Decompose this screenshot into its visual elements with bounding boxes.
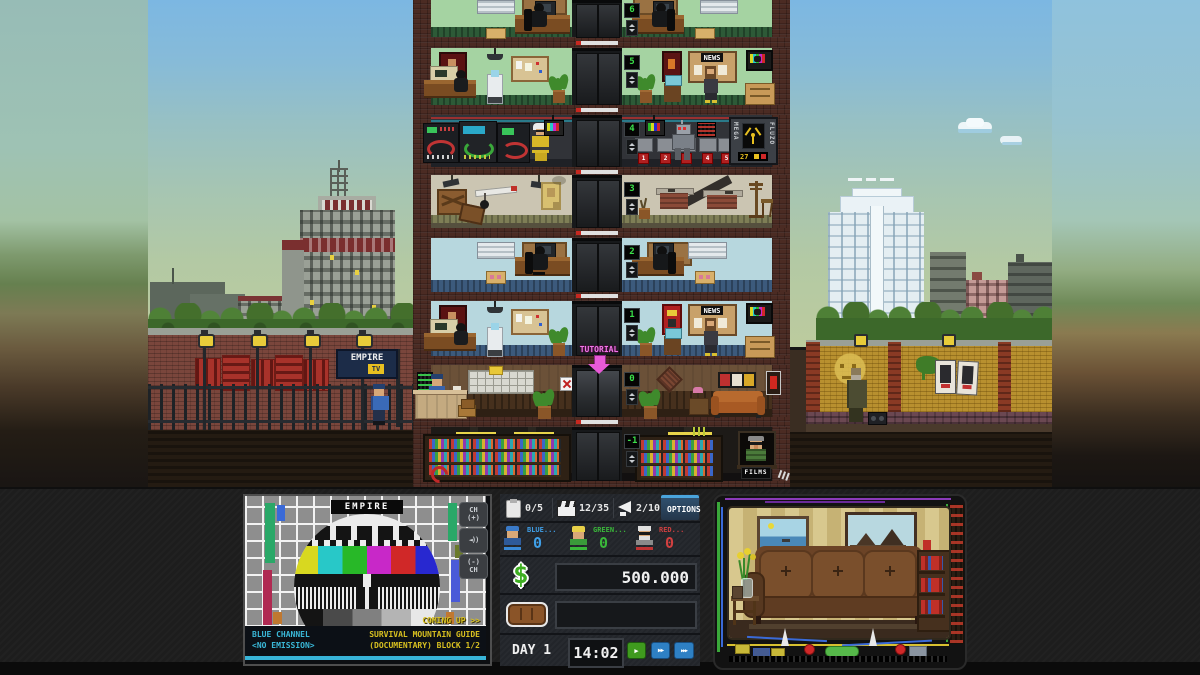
old-poster bbox=[541, 182, 561, 210]
film-shelf bbox=[635, 435, 723, 482]
living-room-panel bbox=[713, 494, 967, 670]
table-photo bbox=[732, 586, 743, 599]
money-value: 500.000 bbox=[622, 568, 689, 587]
news-label: NEWS bbox=[701, 307, 723, 315]
fastest-forward-button[interactable]: ▶▶▶ bbox=[674, 642, 694, 659]
presenter-blue[interactable]: BLUE... 0 bbox=[500, 523, 566, 555]
office-worker bbox=[452, 323, 470, 351]
parcel-boxes bbox=[458, 399, 476, 415]
control-rack bbox=[497, 123, 530, 163]
wall-tv bbox=[746, 303, 773, 324]
tv-electronics-strip bbox=[727, 636, 949, 662]
elevator-floor-6[interactable]: EMPIRE bbox=[572, 0, 622, 37]
play-button[interactable]: ▶ bbox=[627, 642, 646, 659]
films-sign: FILMS bbox=[741, 467, 771, 479]
aquarium-stand bbox=[664, 336, 681, 355]
knob-red bbox=[895, 644, 906, 655]
building: NEWS bbox=[413, 0, 790, 490]
empire-tv-sign: EMPIRE TV bbox=[336, 349, 398, 379]
living-room-view bbox=[727, 506, 951, 640]
elevator-call-buttons[interactable] bbox=[626, 262, 638, 278]
tv-preview-panel: EMPIRE CH(+) ◄)) (-)CH COMING UP >> BLUE… bbox=[243, 494, 492, 666]
clipboard-icon bbox=[506, 500, 521, 518]
avatar bbox=[570, 526, 587, 550]
elevator-floor-5[interactable]: EMPIRE bbox=[572, 48, 622, 105]
city-left: EMPIRE TV bbox=[148, 0, 418, 490]
office-worker bbox=[647, 246, 675, 276]
next-program-line2: (DOCUMENTARY) BLOCK 1/2 bbox=[330, 641, 480, 650]
elevator-call-buttons[interactable] bbox=[626, 389, 638, 405]
side-table bbox=[731, 596, 759, 636]
underground-left bbox=[148, 430, 415, 490]
wall-tv bbox=[746, 50, 773, 71]
control-rack bbox=[423, 123, 459, 163]
office-worker bbox=[524, 3, 552, 33]
drawer-unit bbox=[745, 83, 775, 105]
fast-forward-button[interactable]: ▶▶ bbox=[651, 642, 670, 659]
wrecked-desk bbox=[703, 190, 741, 210]
wall-poster bbox=[956, 360, 979, 395]
news-label: NEWS bbox=[701, 54, 723, 62]
photo-frame bbox=[486, 271, 506, 284]
wrecked-desk bbox=[656, 188, 692, 210]
lobby-couch bbox=[711, 391, 765, 417]
drawer-unit bbox=[745, 336, 775, 358]
broken-chair bbox=[761, 199, 773, 221]
tv-badge: TV bbox=[368, 365, 384, 373]
office-worker bbox=[525, 246, 553, 276]
empire-tv-sign-text: EMPIRE bbox=[338, 353, 396, 363]
floor-indicator: 4 bbox=[624, 122, 640, 137]
avatar bbox=[504, 526, 521, 550]
speaker-icon: ◄)) bbox=[460, 536, 487, 544]
tutorial-arrow-icon bbox=[588, 364, 610, 374]
now-playing-line1: BLUE CHANNEL bbox=[252, 630, 310, 639]
broadcast-progress-bar bbox=[245, 656, 486, 660]
envelope bbox=[489, 366, 503, 375]
floor-indicator: 3 bbox=[624, 182, 640, 197]
elevator-floor-3[interactable]: EMPIRE bbox=[572, 175, 622, 228]
avatar bbox=[636, 526, 653, 550]
coming-up-label: COMING UP >> bbox=[350, 616, 480, 625]
station-label: EMPIRE bbox=[331, 500, 403, 514]
plant bbox=[637, 391, 663, 417]
ads-counter[interactable]: 2/10 bbox=[614, 494, 660, 521]
city-right bbox=[790, 0, 1052, 490]
tv-stand: 4 bbox=[700, 138, 714, 167]
elevator-call-buttons[interactable] bbox=[626, 20, 638, 36]
photo-frame bbox=[486, 28, 506, 39]
archivist-character bbox=[744, 436, 768, 462]
circuit-strip bbox=[949, 504, 964, 644]
wall-lamp bbox=[942, 334, 956, 347]
blur-band-right bbox=[1052, 0, 1200, 490]
money-field: 500.000 bbox=[555, 563, 697, 591]
flux-counter: 27 bbox=[740, 153, 748, 161]
money-icon: $ bbox=[513, 560, 529, 590]
elevator-basement[interactable]: EMPIRE bbox=[572, 427, 622, 481]
options-button[interactable]: OPTIONS bbox=[661, 495, 699, 520]
panel-grid bbox=[697, 122, 716, 137]
window-blinds bbox=[700, 0, 738, 14]
wire-purple bbox=[725, 498, 951, 500]
robot-character bbox=[670, 124, 696, 160]
floor-indicator: 5 bbox=[624, 55, 640, 70]
receptionist-character bbox=[429, 374, 447, 390]
couch-field bbox=[555, 601, 697, 629]
photo-frame bbox=[695, 271, 715, 284]
blur-band-left bbox=[0, 0, 148, 490]
antenna-icon bbox=[869, 628, 877, 646]
knob-red bbox=[804, 644, 815, 655]
poster-strip bbox=[718, 372, 756, 388]
volume-button[interactable]: ◄)) bbox=[459, 528, 488, 553]
control-rack bbox=[459, 121, 497, 163]
floor-indicator: 2 bbox=[624, 245, 640, 260]
floor-indicator: 0 bbox=[624, 372, 640, 387]
channel-up-button[interactable]: CH(+) bbox=[459, 502, 488, 527]
water-cooler bbox=[487, 74, 503, 104]
yellow-wall bbox=[806, 340, 1052, 432]
tv-stand: 1 bbox=[636, 138, 650, 167]
elevator-floor-2[interactable]: EMPIRE bbox=[572, 238, 622, 292]
reporter-character bbox=[702, 318, 720, 356]
notice-board bbox=[511, 56, 549, 82]
elevator-call-buttons[interactable] bbox=[626, 139, 638, 155]
movies-counter[interactable]: 12/35 bbox=[553, 494, 613, 521]
next-program-line1: SURVIVAL MOUNTAIN GUIDE bbox=[330, 630, 480, 639]
elevator-call-buttons[interactable] bbox=[626, 451, 638, 467]
boombox bbox=[868, 412, 887, 425]
clapperboard-icon bbox=[557, 500, 576, 517]
bookshelf bbox=[917, 550, 951, 632]
window-blinds bbox=[477, 0, 515, 14]
wall-lamp bbox=[854, 334, 868, 347]
elevator-floor-4[interactable]: EMPIRE bbox=[572, 115, 622, 167]
game-screen: EMPIRE TV bbox=[0, 0, 1200, 675]
underground-right bbox=[790, 432, 1052, 490]
films-window bbox=[738, 431, 776, 469]
window-blinds bbox=[688, 242, 727, 259]
hud-bar: EMPIRE CH(+) ◄)) (-)CH COMING UP >> BLUE… bbox=[0, 487, 1200, 675]
scripts-counter[interactable]: 0/5 bbox=[500, 494, 552, 521]
audience-couch bbox=[747, 542, 931, 628]
plant bbox=[531, 391, 557, 417]
couch-icon bbox=[508, 604, 546, 625]
now-playing-line2: <NO EMISSION> bbox=[252, 641, 315, 650]
water-cooler bbox=[487, 327, 503, 357]
fire-extinguisher bbox=[766, 371, 781, 395]
antenna-icon bbox=[781, 628, 789, 646]
notice-board bbox=[511, 309, 549, 335]
presenter-green[interactable]: GREEN... 0 bbox=[566, 523, 632, 555]
window-blinds bbox=[477, 242, 515, 259]
reporter-character bbox=[702, 66, 720, 103]
elevator-call-buttons[interactable] bbox=[626, 325, 638, 341]
floor-indicator: 6 bbox=[624, 3, 640, 18]
wire-green bbox=[717, 502, 720, 652]
wire-blue bbox=[721, 507, 723, 647]
scene: EMPIRE TV bbox=[148, 0, 1052, 490]
floor-indicator: 1 bbox=[624, 308, 640, 323]
stats-panel: 0/5 12/35 2/10 OPTIONS bbox=[500, 494, 700, 666]
clock-field: 14:02 bbox=[568, 638, 624, 668]
office-worker bbox=[646, 3, 674, 33]
aquarium-stand bbox=[664, 83, 681, 102]
elevator-call-buttons[interactable] bbox=[626, 72, 638, 88]
elevator-call-buttons[interactable] bbox=[626, 199, 638, 215]
office-worker bbox=[452, 70, 470, 98]
day-label: DAY 1 bbox=[512, 643, 551, 658]
flux-machine: MEGA FLUZO 27 bbox=[729, 117, 778, 165]
wall-poster bbox=[935, 360, 956, 394]
channel-down-button[interactable]: (-)CH bbox=[459, 554, 488, 579]
tutorial-label: TUTORIAL bbox=[567, 345, 631, 354]
plant bbox=[547, 76, 571, 102]
photo-frame bbox=[695, 28, 715, 39]
floor-indicator: -1 bbox=[624, 434, 640, 449]
presenter-red[interactable]: RED... 0 bbox=[632, 523, 700, 555]
